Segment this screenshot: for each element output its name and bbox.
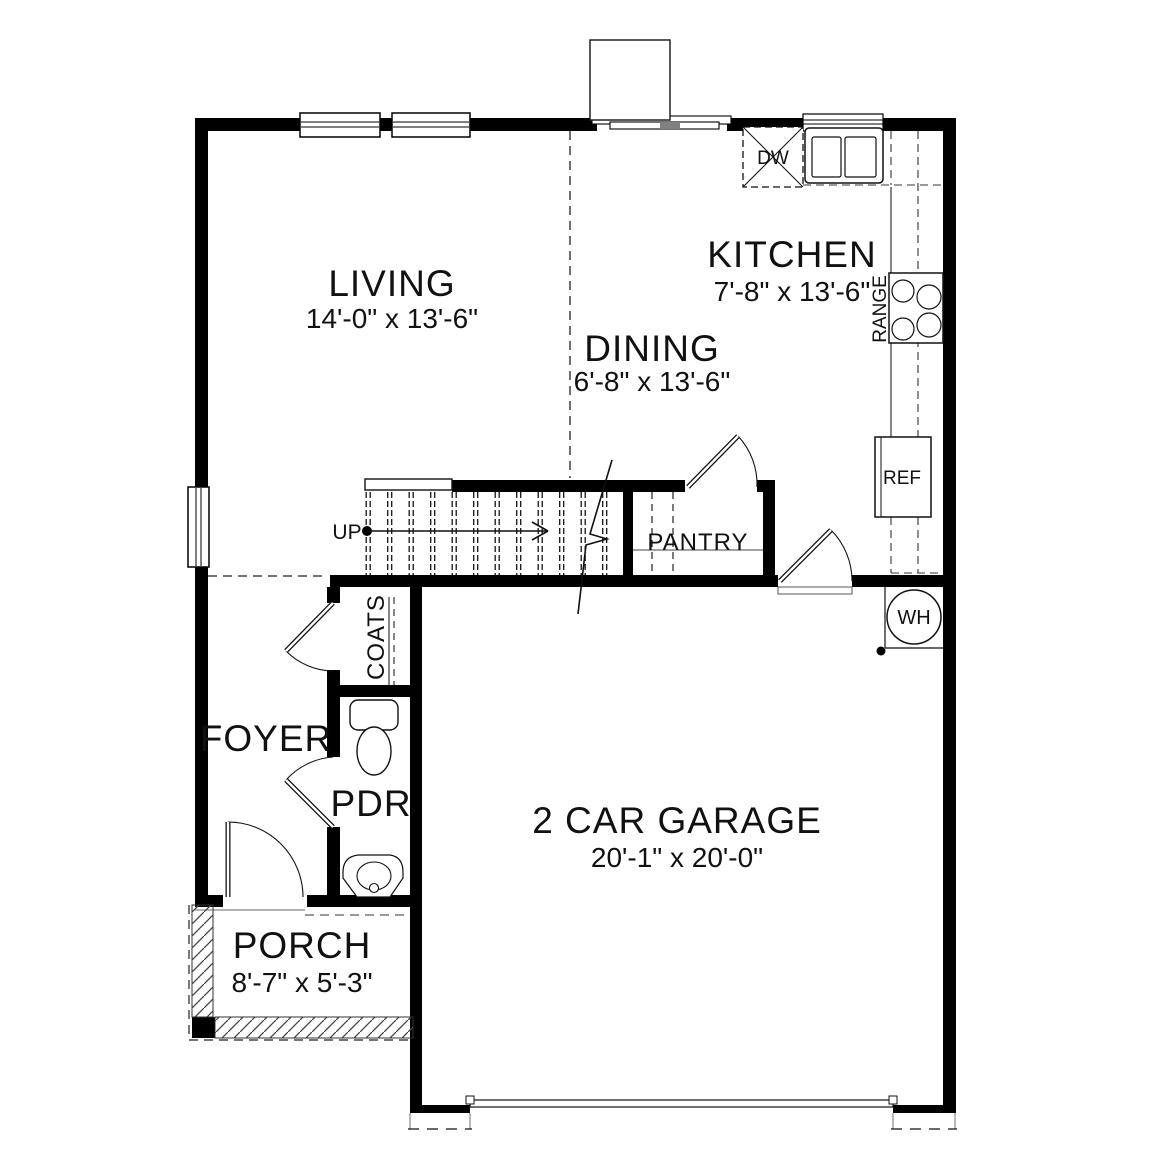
stairs-rail [365,479,452,490]
porch-wall-hatch-bottom [215,1017,413,1038]
foyer-label: FOYER [200,718,332,759]
floor-plan: LIVING 14'-0" x 13'-6" DINING 6'-8" x 13… [0,0,1150,1170]
porch-wall-hatch-left [192,905,213,1017]
chimney-bump-out [590,40,670,120]
kitchen-label: KITCHEN [707,234,876,275]
pantry-door [688,436,757,487]
living-window-1 [300,113,380,137]
living-window-2 [392,113,470,137]
powder-room-door [286,757,333,827]
garage-dims: 20'-1" x 20'-0" [591,842,763,873]
front-door [228,822,303,897]
pdr-sink-symbol [343,855,403,897]
living-dims: 14'-0" x 13'-6" [306,303,478,334]
dining-dims: 6'-8" x 13'-6" [574,366,731,397]
porch-dims: 8'-7" x 5'-3" [231,967,372,998]
living-label: LIVING [328,263,455,304]
kitchen-sink-symbol [805,128,883,183]
range-label: RANGE [870,275,891,343]
coats-label: COATS [363,594,390,680]
pdr-label: PDR [330,783,411,824]
garage-door [408,1096,957,1129]
up-label: UP [332,521,361,544]
living-side-window [188,487,209,567]
coats-door [286,603,333,671]
driveway-aprons [410,1113,955,1129]
pantry-label: PANTRY [647,529,748,556]
porch-label: PORCH [233,925,372,966]
water-heater-label: WH [897,607,930,629]
refrigerator-label: REF [883,468,921,489]
toilet-symbol [350,700,398,775]
dishwasher-label: DW [757,148,789,169]
kitchen-dims: 7'-8" x 13'-6" [714,276,871,307]
range-symbol [889,273,943,343]
dining-label: DINING [584,328,720,369]
floor-plan-drawing: LIVING 14'-0" x 13'-6" DINING 6'-8" x 13… [0,0,1150,1170]
garage-entry-door [778,530,852,594]
garage-label: 2 CAR GARAGE [532,800,822,841]
